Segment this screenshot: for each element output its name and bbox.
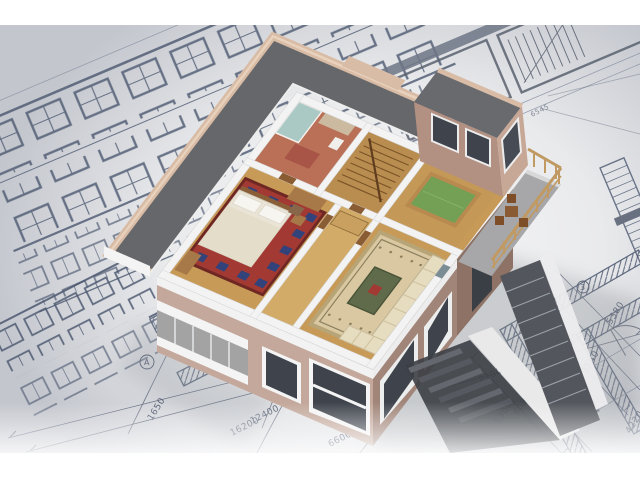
render-canvas: 1650 16200 12400 2300 6600 2100 5300 608…: [0, 0, 640, 480]
architectural-render: 1650 16200 12400 2300 6600 2100 5300 608…: [0, 0, 640, 480]
ground-fade: [0, 402, 640, 455]
terrace-chair: [495, 216, 504, 225]
terrace-table: [505, 206, 518, 217]
letterbox-top: [0, 0, 640, 25]
terrace-chair: [519, 218, 528, 227]
terrace-chair: [507, 194, 516, 203]
letterbox-bottom: [0, 453, 640, 480]
